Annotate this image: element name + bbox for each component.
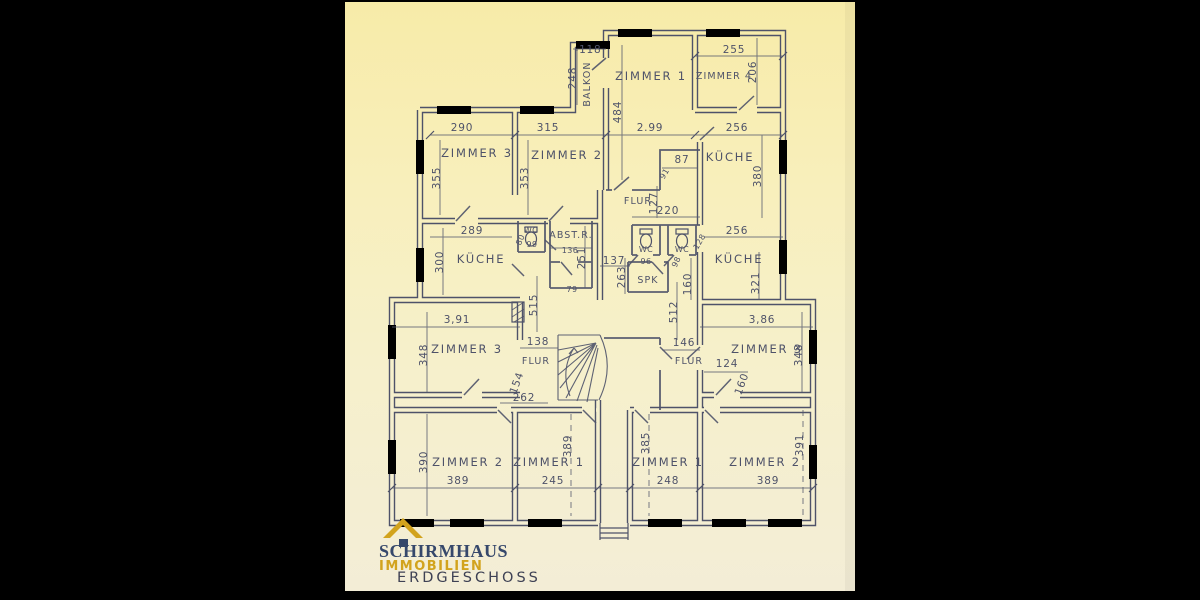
dim-balkon-depth: 248 [567, 67, 579, 89]
window-symbol [388, 325, 396, 359]
window-symbol [779, 240, 787, 274]
dim-z4-width: 255 [723, 44, 745, 56]
dim-z1br-width: 248 [657, 475, 679, 487]
window-symbol [437, 106, 471, 114]
room-label-balkon: BALKON [582, 61, 593, 106]
floor-plan-scan: BALKON ZIMMER 1 ZIMMER 4 KÜCHE ZIMMER 3 … [0, 0, 1200, 600]
window-symbol [712, 519, 746, 527]
dim-kueche-ml-height: 300 [434, 251, 446, 273]
room-label-zimmer1-bottom-left: ZIMMER 1 [513, 455, 585, 469]
dim-515: 515 [528, 294, 540, 316]
dim-z1bl-height: 389 [562, 435, 574, 457]
dim-kueche-tr-height: 380 [752, 165, 764, 187]
window-symbol [528, 519, 562, 527]
room-label-zimmer1-bottom-right: ZIMMER 1 [632, 455, 704, 469]
window-symbol [809, 330, 817, 364]
window-symbol [388, 440, 396, 474]
dim-spk-263: 263 [616, 266, 628, 288]
window-symbol [648, 519, 682, 527]
dim-z4-height: 206 [747, 61, 759, 83]
dim-abstr-height: 251 [576, 247, 588, 269]
dim-z2br-height: 391 [794, 434, 806, 456]
dim-z1br-height: 385 [640, 432, 652, 454]
dim-flur-ll-262: 262 [513, 392, 535, 404]
floor-title: ERDGESCHOSS [397, 570, 541, 586]
dim-kueche-mr-height: 321 [750, 272, 762, 294]
dim-flur-ll-138: 138 [527, 336, 549, 348]
dim-flur-lr-146: 146 [673, 337, 695, 349]
dim-z3ll-width: 3,91 [444, 314, 471, 326]
window-symbol [416, 140, 424, 174]
dim-137: 137 [603, 255, 625, 267]
dim-mid-160: 160 [682, 273, 694, 295]
room-label-spk: SPK [637, 275, 658, 286]
window-symbol [768, 519, 802, 527]
brand-company-name: SCHIRMHAUS [379, 541, 508, 561]
window-symbol [779, 140, 787, 174]
room-label-zimmer2-bottom-right: ZIMMER 2 [729, 455, 801, 469]
dim-balkon-width: -118 [574, 44, 601, 56]
room-label-flur-lower-left: FLUR [522, 356, 550, 367]
dim-z1-height: 484 [612, 101, 624, 123]
dim-kueche-mr-width: 256 [726, 225, 748, 237]
window-symbol [706, 29, 740, 37]
room-label-zimmer3-upper-left: ZIMMER 3 [441, 146, 513, 160]
dim-wc-96: 96 [641, 257, 652, 266]
room-label-abstellraum: ABST.R. [549, 230, 593, 241]
window-symbol [520, 106, 554, 114]
room-label-kueche-top-right: KÜCHE [706, 148, 755, 164]
dim-z2br-width: 389 [757, 475, 779, 487]
dim-abstr-79: 79 [567, 285, 578, 294]
dim-z3ul-height: 355 [431, 167, 443, 189]
dim-wc-chain-220: 220 [657, 205, 679, 217]
window-symbol [450, 519, 484, 527]
room-label-zimmer1-top: ZIMMER 1 [615, 69, 687, 83]
room-label-wc-center-right: WC [675, 245, 689, 254]
dim-wc-left-99: 99 [527, 240, 538, 249]
room-label-zimmer4-top: ZIMMER 4 [696, 71, 752, 82]
dim-nook-87: 87 [675, 154, 690, 166]
window-symbol [416, 248, 424, 282]
room-label-wc-center-left: WC [639, 245, 653, 254]
screenshot-stage: BALKON ZIMMER 1 ZIMMER 4 KÜCHE ZIMMER 3 … [0, 0, 1200, 600]
room-label-kueche-mid-left: KÜCHE [457, 250, 506, 266]
room-label-wc-left: WC [524, 226, 538, 235]
room-label-kueche-mid-right: KÜCHE [715, 250, 764, 266]
dim-chain-299: 2.99 [637, 122, 664, 134]
dim-z2bl-height: 390 [418, 451, 430, 473]
paper-edge-shadow [845, 2, 855, 591]
dim-z2ul-height: 353 [519, 167, 531, 189]
dim-z2bl-width: 389 [447, 475, 469, 487]
dim-512: 512 [668, 301, 680, 323]
dim-flur-lr-124: 124 [716, 358, 738, 370]
dim-z1bl-width: 245 [542, 475, 564, 487]
dim-z3lr-height: 348 [793, 344, 805, 366]
dim-z3ll-height: 348 [418, 344, 430, 366]
dim-chain-256: 256 [726, 122, 748, 134]
room-label-zimmer2-upper-left: ZIMMER 2 [531, 148, 603, 162]
room-label-flur-lower-right: FLUR [675, 356, 703, 367]
dim-chain-315: 315 [537, 122, 559, 134]
window-symbol [618, 29, 652, 37]
dim-chain-290: 290 [451, 122, 473, 134]
dim-z3lr-width: 3,86 [749, 314, 776, 326]
dim-kueche-ml-width: 289 [461, 225, 483, 237]
window-symbol [809, 445, 817, 479]
room-label-zimmer3-lower-left: ZIMMER 3 [431, 342, 503, 356]
room-label-zimmer2-bottom-left: ZIMMER 2 [432, 455, 504, 469]
